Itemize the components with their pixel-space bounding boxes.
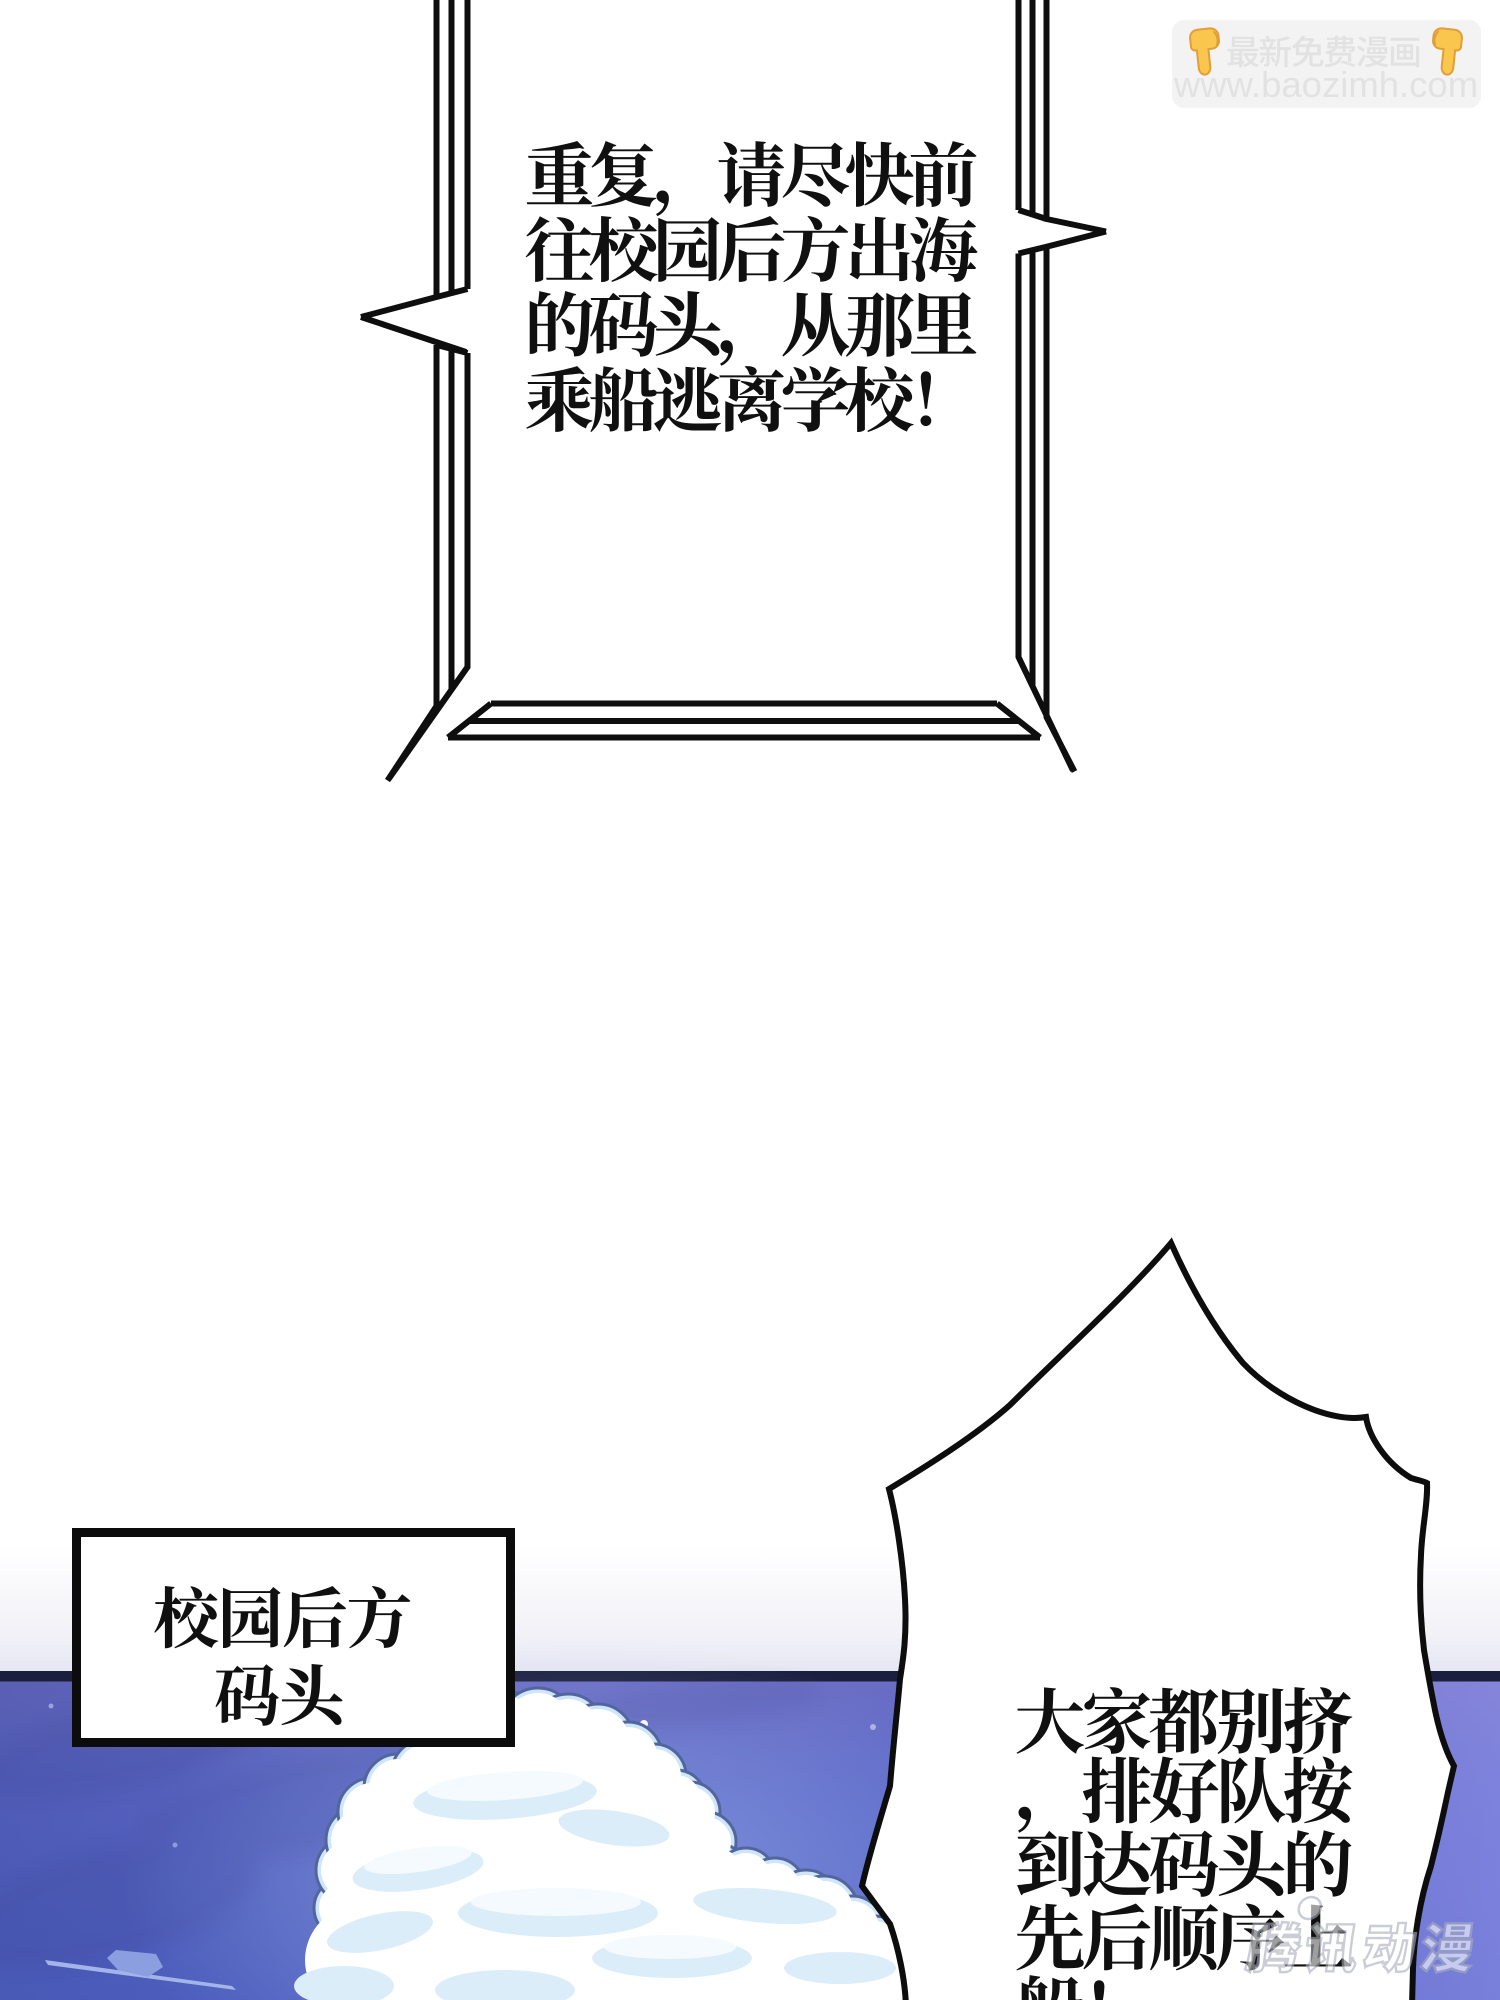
svg-text:www.baozimh.com: www.baozimh.com xyxy=(1173,64,1478,105)
